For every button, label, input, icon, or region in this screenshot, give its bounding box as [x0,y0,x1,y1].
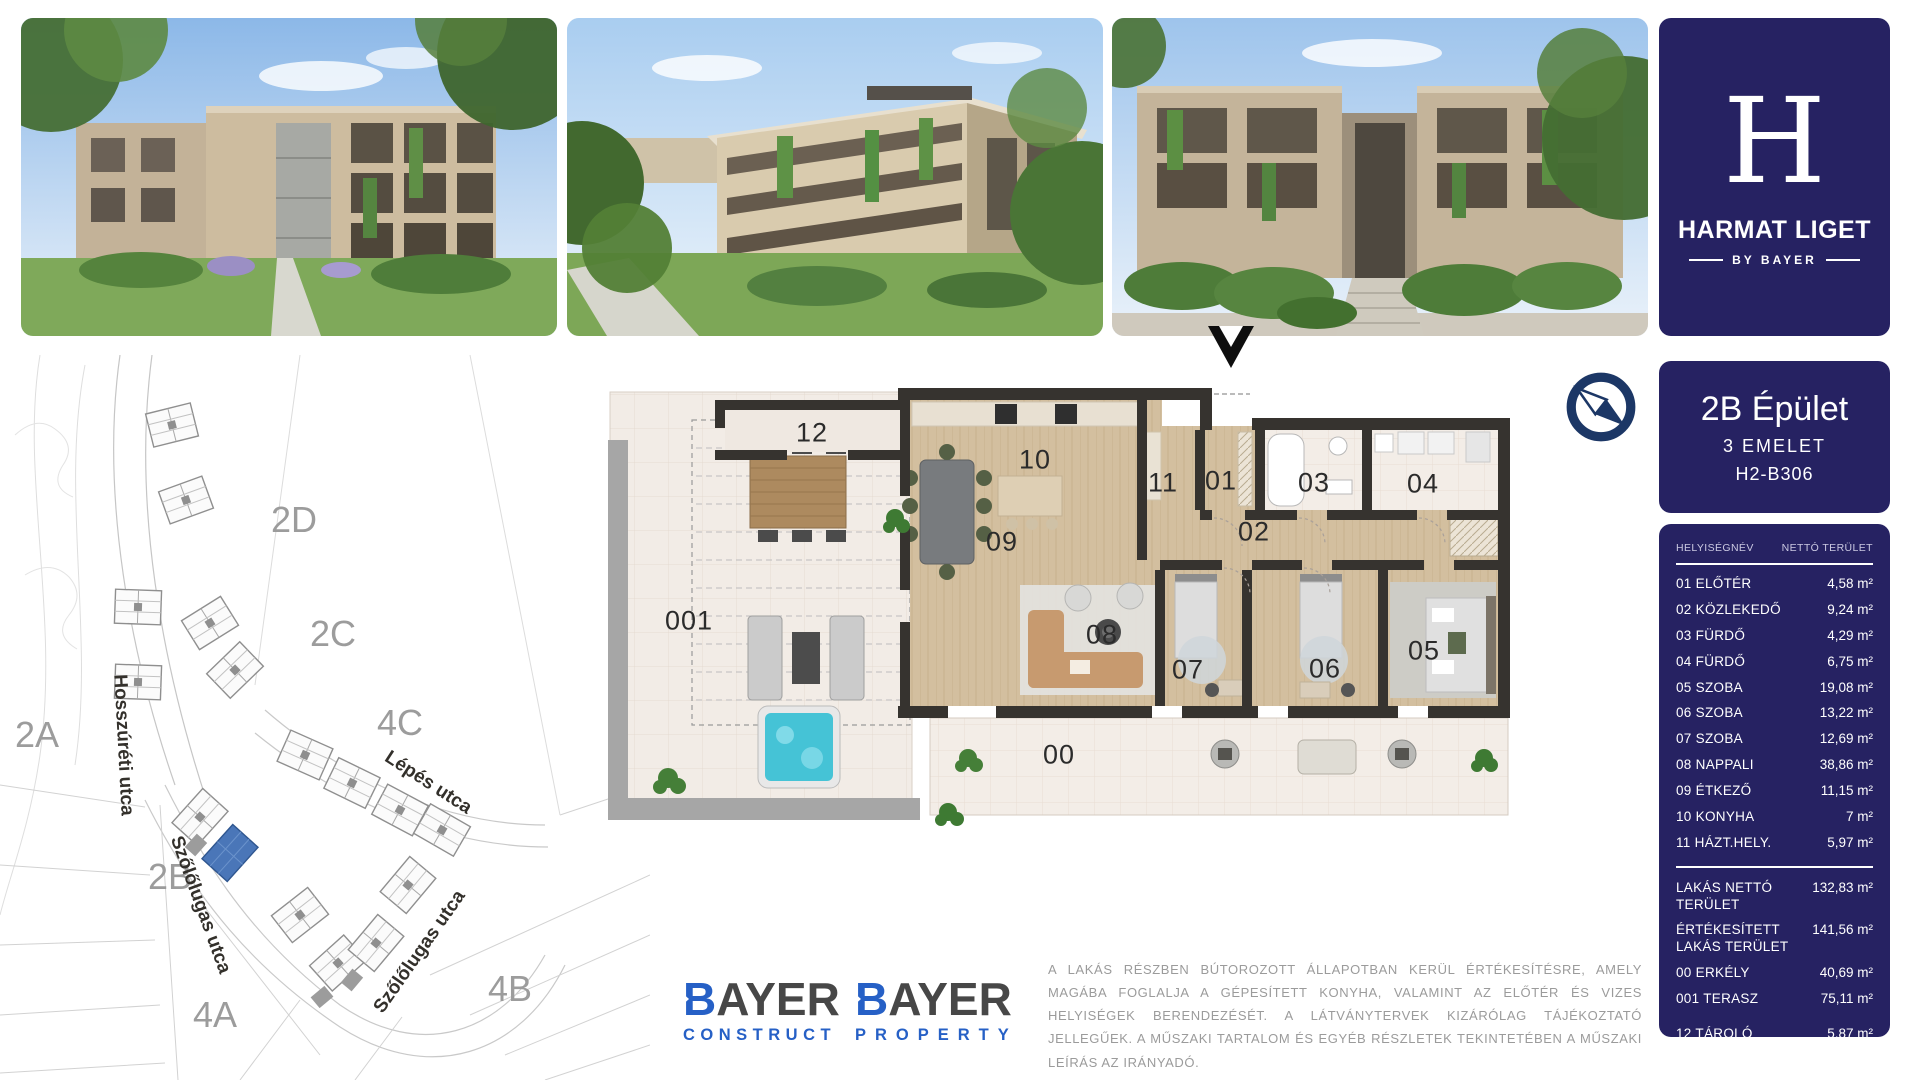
summary-row: 001 TERASZ75,11 m² [1676,991,1873,1008]
summary-row: 00 ERKÉLY40,69 m² [1676,965,1873,982]
table-row: 06 SZOBA13,22 m² [1676,705,1873,722]
room-label-001: 001 [665,606,713,637]
summary-row: LAKÁS NETTÓ TERÜLET132,83 m² [1676,880,1873,914]
map-area-label-2c: 2C [310,613,356,655]
apartment-floor-plan: 12 10 11 01 03 04 02 09 001 08 07 06 05 … [600,320,1515,838]
disclaimer-text: A LAKÁS RÉSZBEN BÚTOROZOTT ÁLLAPOTBAN KE… [1048,958,1642,1074]
room-label-04: 04 [1407,469,1439,500]
divider-line [1689,259,1723,261]
bayer-construct-logo: BAYER CONSTRUCT [683,976,840,1045]
site-map-drawing [0,355,650,1080]
summary-row: ÉRTÉKESÍTETT LAKÁS TERÜLET141,56 m² [1676,922,1873,956]
room-label-08: 08 [1086,620,1118,651]
bayer-construct-sub: CONSTRUCT [683,1026,840,1045]
table-row: 10 KONYHA7 m² [1676,809,1873,826]
table-row: 11 HÁZT.HELY.5,97 m² [1676,835,1873,852]
summary-row: 12 TÁROLÓ5,87 m² [1676,1026,1873,1043]
divider-line [1826,259,1860,261]
entrance-arrow-icon [1208,326,1254,368]
table-header: HELYISÉGNÉV NETTÓ TERÜLET [1676,542,1873,565]
unit-floor: 3 EMELET [1723,436,1826,457]
map-area-label-4c: 4C [377,702,423,744]
table-row: 05 SZOBA19,08 m² [1676,680,1873,697]
courtyard-render-illustration [21,18,557,336]
map-area-label-2d: 2D [271,499,317,541]
map-area-label-2a: 2A [15,714,59,756]
col-room-name: HELYISÉGNÉV [1676,542,1754,554]
table-row: 09 ÉTKEZŐ11,15 m² [1676,783,1873,800]
room-label-07: 07 [1172,655,1204,686]
room-label-10: 10 [1019,445,1051,476]
room-area-table: HELYISÉGNÉV NETTÓ TERÜLET 01 ELŐTÉR4,58 … [1659,524,1890,1037]
table-row: 07 SZOBA12,69 m² [1676,731,1873,748]
room-label-02: 02 [1238,517,1270,548]
bayer-wordmark: BAYER [855,976,1018,1022]
table-row: 03 FÜRDŐ4,29 m² [1676,628,1873,645]
unit-header-card: 2B Épület 3 EMELET H2-B306 [1659,361,1890,513]
table-row: 08 NAPPALI38,86 m² [1676,757,1873,774]
corner-render-illustration [567,18,1103,336]
room-label-01: 01 [1205,466,1237,497]
highlighted-building-2b [202,825,258,882]
room-label-05: 05 [1408,636,1440,667]
table-divider [1676,866,1873,868]
floorplan-sheet: H HARMAT LIGET BY BAYER 2B Épület 3 EMEL… [0,0,1920,1080]
table-row: 04 FÜRDŐ6,75 m² [1676,654,1873,671]
room-label-03: 03 [1298,468,1330,499]
map-area-label-4a: 4A [193,994,237,1036]
brand-logo-card: H HARMAT LIGET BY BAYER [1659,18,1890,336]
room-label-12: 12 [796,418,828,449]
unit-code: H2-B306 [1735,464,1813,485]
table-row: 01 ELŐTÉR4,58 m² [1676,576,1873,593]
room-label-09: 09 [986,527,1018,558]
bayer-property-logo: BAYER PROPERTY [855,976,1018,1045]
bayer-b-glyph: B [683,976,716,1022]
site-map: 2D 2C 2A 4C 2B 4A 4B Hosszúréti utca Lép… [0,355,650,1080]
entrance-render-illustration [1112,18,1648,336]
room-label-00: 00 [1043,740,1075,771]
bayer-property-sub: PROPERTY [855,1026,1018,1045]
brand-monogram: H [1723,82,1826,200]
compass-icon [1562,368,1640,446]
map-area-label-4b: 4B [488,968,532,1010]
render-photo-entrance [1112,18,1648,336]
bayer-wordmark: BAYER [683,976,840,1022]
bayer-b-glyph: B [855,976,888,1022]
table-summary: LAKÁS NETTÓ TERÜLET132,83 m² ÉRTÉKESÍTET… [1676,880,1873,1043]
render-photo-corner [567,18,1103,336]
brand-tagline-row: BY BAYER [1689,253,1860,267]
brand-title: HARMAT LIGET [1678,216,1871,245]
room-label-11: 11 [1148,468,1178,499]
brand-tagline: BY BAYER [1732,253,1817,267]
col-net-area: NETTÓ TERÜLET [1782,542,1873,554]
table-row: 02 KÖZLEKEDŐ9,24 m² [1676,602,1873,619]
render-photo-courtyard [21,18,557,336]
table-rows: 01 ELŐTÉR4,58 m² 02 KÖZLEKEDŐ9,24 m² 03 … [1676,576,1873,852]
room-label-06: 06 [1309,654,1341,685]
unit-building: 2B Épület [1701,390,1848,429]
